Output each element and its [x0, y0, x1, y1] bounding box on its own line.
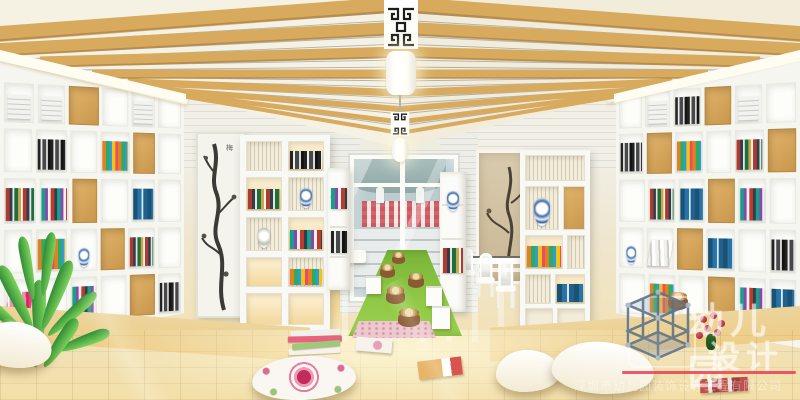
tree-stump-stool — [386, 290, 405, 304]
magazine — [417, 356, 463, 379]
wood-accent-cell — [133, 132, 155, 173]
books-cell — [706, 229, 734, 272]
books-cell — [770, 230, 796, 274]
books-cell — [128, 228, 155, 270]
books-cell — [738, 278, 766, 322]
books-cell — [132, 179, 155, 222]
books-cell — [4, 178, 36, 224]
storage-box-cell — [735, 84, 762, 124]
svg-text:梅: 梅 — [226, 143, 233, 152]
books-cell — [648, 179, 675, 222]
display-cell — [288, 217, 324, 251]
ink-plum-branch: 梅 — [198, 134, 240, 312]
display-cell — [557, 308, 585, 327]
empty-cell — [770, 178, 796, 224]
display-cell — [288, 257, 324, 287]
tree-stump-stool — [668, 296, 688, 310]
white-box-stool — [426, 286, 442, 306]
display-cell — [555, 274, 585, 304]
display-cell — [525, 235, 563, 269]
display-cell — [246, 177, 282, 211]
empty-cell — [158, 180, 181, 223]
display-cell — [288, 177, 324, 211]
wood-accent-cell — [705, 86, 732, 126]
lantern-shade — [392, 138, 408, 162]
storage-box-cell — [645, 89, 670, 127]
white-chair — [498, 258, 516, 308]
books-cell — [738, 178, 766, 223]
empty-cell — [4, 128, 32, 172]
magazine — [355, 336, 392, 353]
books-cell — [674, 87, 702, 126]
floral-floor-cushion — [251, 353, 357, 400]
wood-accent-cell — [130, 274, 155, 316]
display-shelf-left — [240, 135, 330, 331]
lattice-fret-icon — [390, 112, 410, 136]
books-cell — [101, 131, 130, 173]
books-cell — [770, 279, 796, 324]
celadon-vase — [258, 228, 270, 248]
narrow-shelf-left — [328, 168, 350, 290]
empty-cell — [619, 273, 645, 315]
lattice-fret-icon — [384, 5, 418, 49]
empty-cell — [766, 82, 796, 123]
books-cell — [40, 178, 69, 223]
empty-cell — [738, 229, 766, 273]
tree-stump-stool — [392, 255, 405, 264]
empty-cell — [619, 91, 642, 129]
display-cell — [246, 293, 282, 325]
porcelain-vase — [626, 246, 636, 265]
display-cell — [246, 257, 282, 287]
floor-cushion — [550, 338, 656, 399]
tree-stump-stool — [398, 312, 420, 327]
wood-accent-cell — [768, 128, 796, 172]
books-cell — [679, 179, 705, 223]
display-cell — [288, 293, 324, 325]
tree-stump-stool — [408, 276, 424, 288]
red-flower-bouquet — [694, 312, 730, 352]
vase-cell — [619, 227, 643, 268]
leaning-books-cell — [647, 228, 674, 270]
empty-cell — [706, 130, 731, 173]
right-bookshelf-wall — [610, 48, 800, 348]
display-cell — [288, 141, 324, 171]
wood-accent-cell — [72, 179, 97, 223]
display-cell — [246, 217, 282, 251]
storage-box-cell — [4, 82, 34, 123]
plum-blossom-scroll: 梅 — [196, 132, 246, 318]
wood-accent-cell — [708, 179, 735, 224]
display-cell — [246, 141, 282, 171]
tree-stump-stool — [380, 267, 395, 278]
display-cell — [525, 186, 559, 230]
wood-accent-cell — [69, 86, 99, 126]
empty-cell — [101, 179, 128, 223]
porcelain-vase — [534, 198, 550, 226]
display-cell — [525, 274, 551, 304]
wood-accent-cell — [647, 132, 672, 174]
empty-cell — [102, 88, 128, 127]
display-cell — [525, 308, 553, 327]
empty-cell — [158, 91, 181, 129]
books-cell — [619, 133, 643, 174]
book-stack — [287, 329, 342, 356]
wood-accent-cell — [563, 186, 585, 230]
display-cell — [567, 235, 585, 269]
narrow-shelf-right — [440, 172, 466, 312]
books-cell — [675, 131, 703, 173]
books-cell — [36, 129, 67, 173]
display-cell — [525, 155, 585, 181]
books-cell — [735, 129, 764, 173]
wood-accent-cell — [677, 228, 703, 270]
display-shelf-right — [520, 150, 590, 332]
white-box-stool — [366, 276, 381, 294]
lantern-cord — [399, 95, 401, 112]
reading-room-rendering: 梅 — [0, 0, 800, 400]
pink-rug — [352, 321, 436, 338]
wood-floor — [0, 330, 800, 400]
empty-cell — [158, 227, 181, 268]
storage-box-cell — [132, 89, 155, 127]
porcelain-vase — [447, 191, 459, 211]
small-books — [700, 377, 749, 393]
floor-cushion — [496, 350, 560, 392]
empty-cell — [158, 133, 181, 174]
white-box-stool — [432, 306, 450, 329]
empty-cell — [71, 130, 98, 173]
lantern-shade — [386, 51, 416, 95]
porcelain-vase — [300, 188, 312, 208]
books-cell — [158, 273, 181, 315]
empty-cell — [619, 179, 645, 222]
storage-box-cell — [38, 84, 65, 124]
white-chair — [479, 253, 494, 297]
